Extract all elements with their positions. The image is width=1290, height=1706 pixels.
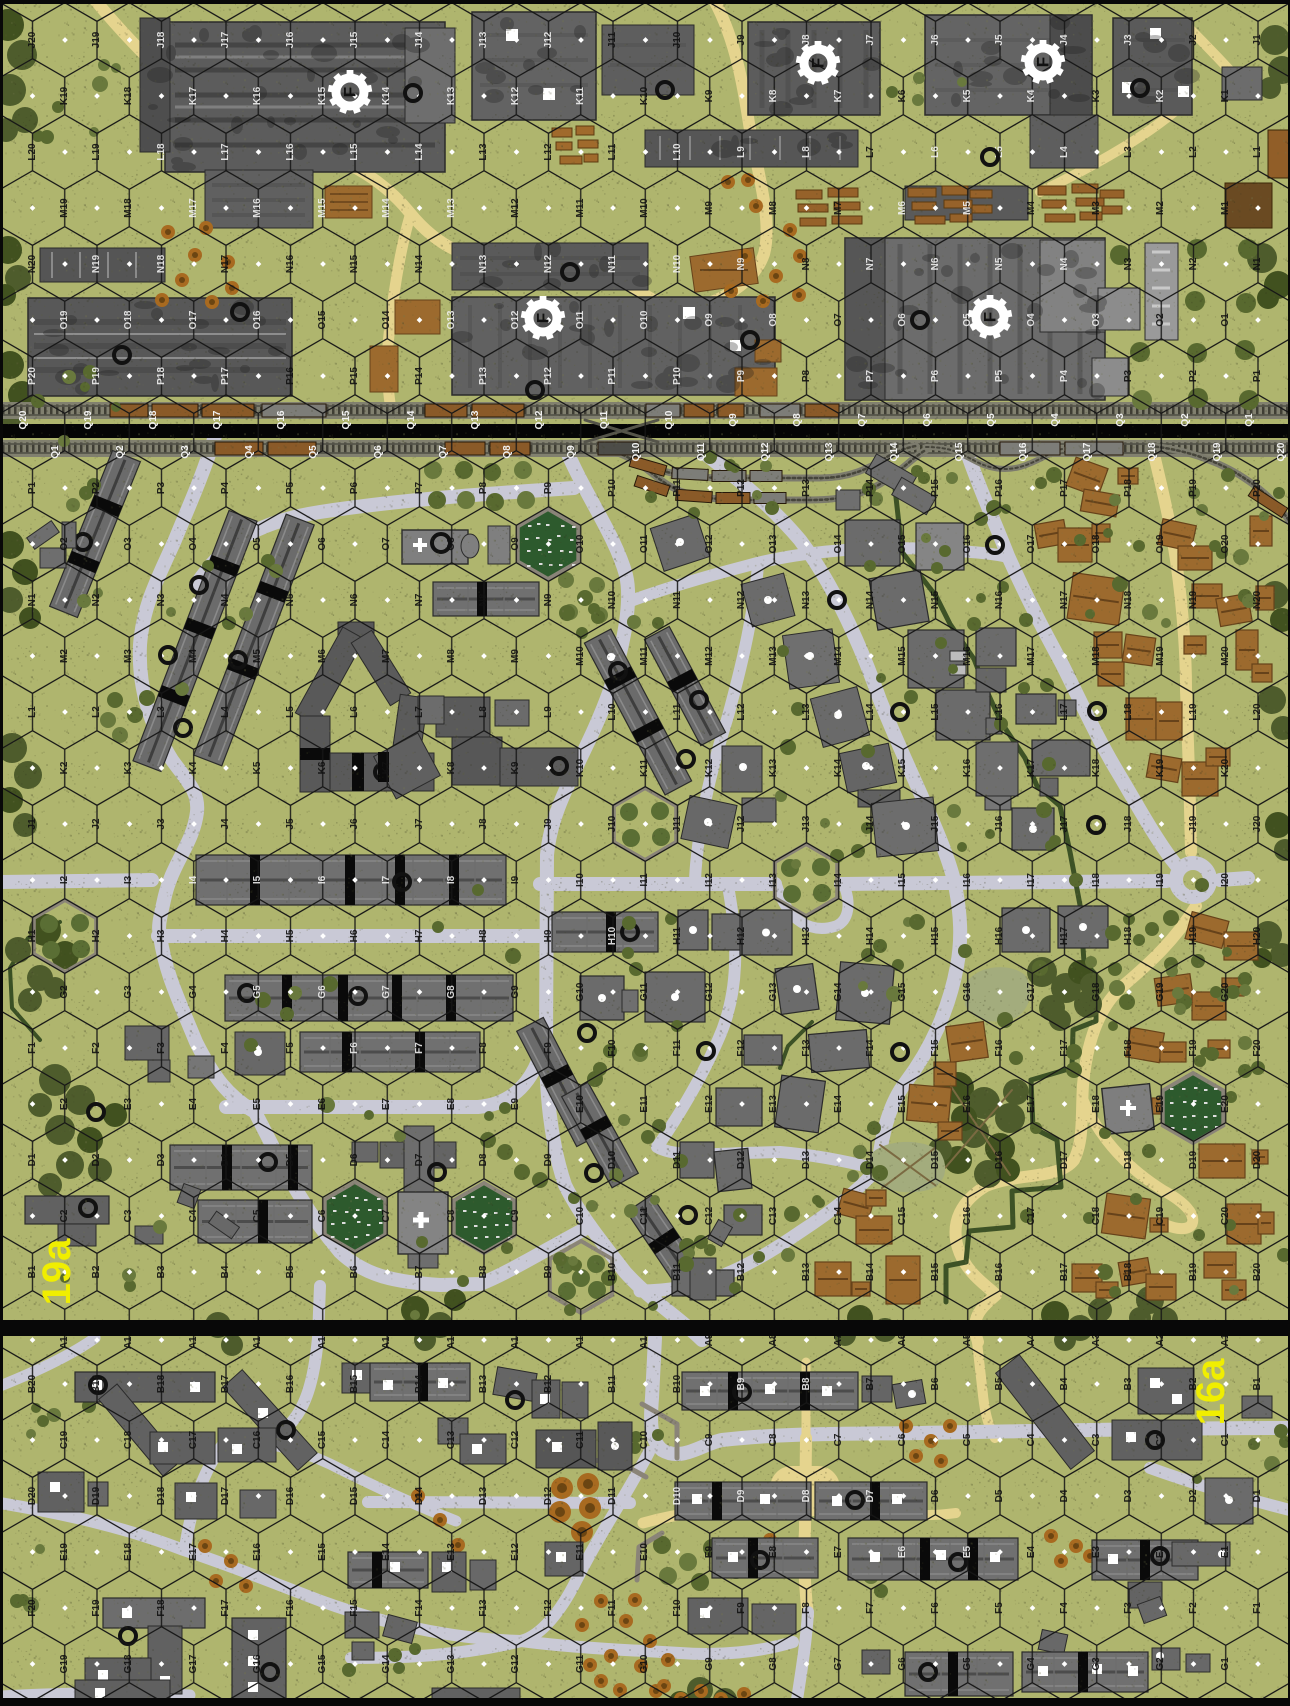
svg-text:D1: D1 xyxy=(27,1153,38,1166)
svg-text:O5: O5 xyxy=(252,537,263,551)
svg-text:I12: I12 xyxy=(704,873,715,887)
svg-text:D14: D14 xyxy=(414,1486,425,1505)
svg-text:J9: J9 xyxy=(543,818,554,830)
svg-text:O11: O11 xyxy=(575,310,586,329)
svg-text:N11: N11 xyxy=(607,255,618,273)
svg-text:J17: J17 xyxy=(1059,815,1070,832)
svg-text:Q3: Q3 xyxy=(1115,413,1126,427)
svg-text:P16: P16 xyxy=(994,479,1005,497)
svg-text:E13: E13 xyxy=(446,1543,457,1561)
svg-text:K18: K18 xyxy=(1091,758,1102,777)
svg-text:O3: O3 xyxy=(123,537,134,551)
svg-text:O20: O20 xyxy=(1220,534,1231,553)
svg-text:K4: K4 xyxy=(188,761,199,774)
svg-text:O10: O10 xyxy=(575,534,586,553)
svg-text:C12: C12 xyxy=(704,1206,715,1225)
svg-text:D2: D2 xyxy=(1188,1489,1199,1502)
svg-text:F6: F6 xyxy=(930,1602,941,1614)
svg-text:B8: B8 xyxy=(478,1265,489,1278)
svg-text:M3: M3 xyxy=(123,649,134,663)
svg-text:F16: F16 xyxy=(994,1039,1005,1057)
svg-text:F11: F11 xyxy=(607,1599,618,1616)
svg-text:N4: N4 xyxy=(220,593,231,606)
svg-text:B3: B3 xyxy=(1123,1377,1134,1390)
svg-text:E20: E20 xyxy=(1220,1095,1231,1113)
svg-text:B10: B10 xyxy=(607,1262,618,1281)
svg-text:Q18: Q18 xyxy=(148,410,159,429)
svg-text:D3: D3 xyxy=(156,1153,167,1166)
svg-text:E10: E10 xyxy=(575,1095,586,1113)
svg-text:E3: E3 xyxy=(123,1097,134,1110)
svg-text:J18: J18 xyxy=(156,31,167,48)
svg-text:F8: F8 xyxy=(478,1042,489,1054)
svg-text:P1: P1 xyxy=(1252,369,1263,382)
svg-text:G18: G18 xyxy=(123,1654,134,1673)
svg-text:L11: L11 xyxy=(672,703,683,720)
svg-text:I13: I13 xyxy=(768,873,779,887)
svg-text:O3: O3 xyxy=(1091,313,1102,327)
svg-text:M1: M1 xyxy=(1220,201,1231,215)
svg-text:L17: L17 xyxy=(1059,703,1070,721)
svg-text:D20: D20 xyxy=(27,1486,38,1505)
svg-text:Q19: Q19 xyxy=(1212,442,1223,461)
svg-text:Q18: Q18 xyxy=(1147,442,1158,461)
svg-text:C19: C19 xyxy=(1155,1206,1166,1225)
svg-text:L2: L2 xyxy=(91,706,102,718)
svg-text:P13: P13 xyxy=(478,367,489,385)
svg-text:B7: B7 xyxy=(865,1377,876,1390)
svg-text:E8: E8 xyxy=(446,1097,457,1110)
svg-text:B9: B9 xyxy=(736,1377,747,1390)
svg-text:O15: O15 xyxy=(897,534,908,553)
svg-text:J2: J2 xyxy=(1188,34,1199,46)
svg-text:B16: B16 xyxy=(285,1374,296,1393)
svg-text:F4: F4 xyxy=(220,1042,231,1054)
svg-text:J20: J20 xyxy=(27,31,38,48)
svg-text:G13: G13 xyxy=(768,982,779,1001)
svg-text:B15: B15 xyxy=(349,1374,360,1393)
svg-text:P4: P4 xyxy=(1059,369,1070,382)
svg-text:P14: P14 xyxy=(414,367,425,385)
svg-text:J5: J5 xyxy=(994,34,1005,46)
svg-text:D8: D8 xyxy=(478,1153,489,1166)
svg-text:D15: D15 xyxy=(930,1150,941,1169)
svg-text:P7: P7 xyxy=(865,369,876,382)
svg-text:C5: C5 xyxy=(962,1433,973,1446)
svg-text:L20: L20 xyxy=(1252,703,1263,721)
svg-text:J16: J16 xyxy=(285,31,296,48)
svg-text:P6: P6 xyxy=(930,369,941,382)
svg-text:G12: G12 xyxy=(510,1654,521,1673)
svg-text:E5: E5 xyxy=(252,1097,263,1110)
svg-text:E9: E9 xyxy=(704,1545,715,1558)
svg-text:D11: D11 xyxy=(607,1487,618,1505)
svg-text:G7: G7 xyxy=(381,985,392,999)
svg-text:G14: G14 xyxy=(833,982,844,1001)
svg-text:N20: N20 xyxy=(1252,590,1263,609)
svg-text:K6: K6 xyxy=(317,761,328,774)
svg-text:E16: E16 xyxy=(252,1543,263,1561)
svg-text:F10: F10 xyxy=(607,1039,618,1057)
svg-text:D11: D11 xyxy=(672,1151,683,1169)
svg-text:C11: C11 xyxy=(575,1431,586,1449)
svg-text:J10: J10 xyxy=(672,31,683,48)
svg-text:I18: I18 xyxy=(1091,873,1102,887)
svg-text:L13: L13 xyxy=(478,143,489,161)
svg-text:F2: F2 xyxy=(1188,1602,1199,1614)
svg-text:C14: C14 xyxy=(833,1206,844,1225)
svg-text:E13: E13 xyxy=(768,1095,779,1113)
svg-text:G3: G3 xyxy=(123,985,134,999)
svg-text:C4: C4 xyxy=(1026,1433,1037,1446)
svg-text:Q2: Q2 xyxy=(115,445,126,459)
svg-text:B13: B13 xyxy=(801,1262,812,1281)
svg-text:Q16: Q16 xyxy=(276,410,287,429)
svg-text:G14: G14 xyxy=(381,1654,392,1673)
svg-text:D4: D4 xyxy=(1059,1489,1070,1502)
svg-text:Q8: Q8 xyxy=(792,413,803,427)
svg-text:L10: L10 xyxy=(607,703,618,721)
svg-text:L6: L6 xyxy=(349,706,360,718)
svg-text:P11: P11 xyxy=(672,479,683,497)
svg-text:H11: H11 xyxy=(672,927,683,945)
svg-text:J15: J15 xyxy=(930,815,941,832)
svg-text:M16: M16 xyxy=(252,198,263,218)
svg-text:Q12: Q12 xyxy=(534,410,545,429)
svg-text:Q16: Q16 xyxy=(1018,442,1029,461)
svg-text:M15: M15 xyxy=(897,646,908,666)
svg-text:O17: O17 xyxy=(188,310,199,329)
svg-text:N18: N18 xyxy=(1123,590,1134,609)
svg-text:N3: N3 xyxy=(156,593,167,606)
svg-text:K19: K19 xyxy=(59,86,70,105)
svg-text:L3: L3 xyxy=(156,706,167,718)
svg-text:Q3: Q3 xyxy=(180,445,191,459)
svg-text:C20: C20 xyxy=(1220,1206,1231,1225)
svg-text:I3: I3 xyxy=(123,875,134,884)
svg-text:D16: D16 xyxy=(994,1150,1005,1169)
svg-text:F14: F14 xyxy=(414,1599,425,1617)
svg-text:O8: O8 xyxy=(446,537,457,551)
svg-text:K14: K14 xyxy=(381,86,392,105)
svg-text:M6: M6 xyxy=(897,201,908,215)
svg-text:J3: J3 xyxy=(156,818,167,830)
svg-text:O17: O17 xyxy=(1026,534,1037,553)
svg-text:L8: L8 xyxy=(478,706,489,718)
svg-text:F9: F9 xyxy=(543,1042,554,1054)
svg-text:F8: F8 xyxy=(801,1602,812,1614)
svg-text:Q13: Q13 xyxy=(824,442,835,461)
svg-text:L11: L11 xyxy=(607,143,618,160)
svg-text:Q12: Q12 xyxy=(760,442,771,461)
svg-text:J6: J6 xyxy=(930,34,941,46)
svg-text:E4: E4 xyxy=(188,1097,199,1110)
svg-text:M11: M11 xyxy=(575,198,586,217)
svg-text:N14: N14 xyxy=(414,254,425,273)
svg-text:Q14: Q14 xyxy=(889,442,900,461)
svg-text:B8: B8 xyxy=(801,1377,812,1390)
svg-text:Q7: Q7 xyxy=(438,445,449,459)
svg-text:D17: D17 xyxy=(220,1486,231,1505)
svg-text:Q17: Q17 xyxy=(212,410,223,429)
svg-text:N12: N12 xyxy=(543,254,554,273)
svg-text:O19: O19 xyxy=(1155,534,1166,553)
svg-text:Q19: Q19 xyxy=(83,410,94,429)
svg-text:N19: N19 xyxy=(1188,590,1199,609)
svg-text:O12: O12 xyxy=(704,534,715,553)
svg-text:M7: M7 xyxy=(833,201,844,215)
svg-text:O12: O12 xyxy=(510,310,521,329)
svg-text:F11: F11 xyxy=(672,1039,683,1056)
svg-text:J9: J9 xyxy=(736,34,747,46)
svg-text:Q11: Q11 xyxy=(696,442,707,461)
svg-text:K10: K10 xyxy=(575,758,586,777)
svg-text:16a: 16a xyxy=(1189,1358,1233,1425)
svg-text:K9: K9 xyxy=(704,89,715,102)
svg-text:P15: P15 xyxy=(930,479,941,497)
svg-text:M4: M4 xyxy=(1026,201,1037,215)
svg-text:M17: M17 xyxy=(1026,646,1037,666)
svg-text:Q5: Q5 xyxy=(308,445,319,459)
svg-text:N4: N4 xyxy=(1059,257,1070,270)
svg-text:F4: F4 xyxy=(1059,1602,1070,1614)
svg-text:M7: M7 xyxy=(381,649,392,663)
svg-text:D2: D2 xyxy=(91,1153,102,1166)
svg-text:P14: P14 xyxy=(865,479,876,497)
svg-text:N5: N5 xyxy=(994,257,1005,270)
svg-text:F3: F3 xyxy=(1123,1602,1134,1614)
svg-text:F20: F20 xyxy=(27,1599,38,1617)
svg-text:B19: B19 xyxy=(91,1374,102,1393)
svg-text:M20: M20 xyxy=(1220,646,1231,666)
svg-text:K20: K20 xyxy=(1220,758,1231,777)
svg-text:G1: G1 xyxy=(1220,1657,1231,1671)
svg-text:K14: K14 xyxy=(833,758,844,777)
svg-text:Q5: Q5 xyxy=(986,413,997,427)
svg-text:B14: B14 xyxy=(414,1374,425,1393)
svg-text:K19: K19 xyxy=(1155,758,1166,777)
svg-text:P5: P5 xyxy=(994,369,1005,382)
svg-text:C12: C12 xyxy=(510,1430,521,1449)
svg-text:P18: P18 xyxy=(156,367,167,385)
svg-text:B19: B19 xyxy=(1188,1262,1199,1281)
svg-text:G2: G2 xyxy=(59,985,70,999)
svg-text:K5: K5 xyxy=(252,761,263,774)
svg-text:D5: D5 xyxy=(285,1153,296,1166)
svg-text:N12: N12 xyxy=(736,590,747,609)
svg-text:M2: M2 xyxy=(59,649,70,663)
svg-text:B20: B20 xyxy=(1252,1262,1263,1281)
svg-text:P9: P9 xyxy=(543,481,554,494)
svg-text:K12: K12 xyxy=(510,86,521,105)
svg-text:E6: E6 xyxy=(317,1097,328,1110)
svg-text:N10: N10 xyxy=(672,254,683,273)
svg-text:B11: B11 xyxy=(607,1375,618,1393)
svg-text:E4: E4 xyxy=(1026,1545,1037,1558)
svg-text:J8: J8 xyxy=(801,34,812,46)
svg-text:O19: O19 xyxy=(59,310,70,329)
svg-text:I7: I7 xyxy=(381,875,392,884)
svg-text:J12: J12 xyxy=(543,31,554,48)
svg-text:Q20: Q20 xyxy=(18,410,29,429)
svg-text:D19: D19 xyxy=(1188,1150,1199,1169)
svg-text:O6: O6 xyxy=(897,313,908,327)
svg-text:B17: B17 xyxy=(1059,1262,1070,1281)
svg-text:H14: H14 xyxy=(865,926,876,945)
svg-text:L4: L4 xyxy=(220,706,231,718)
svg-text:B7: B7 xyxy=(414,1265,425,1278)
svg-text:L20: L20 xyxy=(27,143,38,161)
svg-text:Q13: Q13 xyxy=(470,410,481,429)
svg-text:K17: K17 xyxy=(1026,758,1037,777)
svg-text:G10: G10 xyxy=(575,982,586,1001)
svg-text:N1: N1 xyxy=(27,593,38,606)
svg-text:E12: E12 xyxy=(510,1543,521,1561)
svg-text:M6: M6 xyxy=(317,649,328,663)
svg-text:C16: C16 xyxy=(252,1430,263,1449)
svg-text:L9: L9 xyxy=(736,146,747,158)
svg-text:D18: D18 xyxy=(1123,1150,1134,1169)
svg-text:N2: N2 xyxy=(91,593,102,606)
svg-text:M10: M10 xyxy=(575,646,586,666)
svg-text:E3: E3 xyxy=(1091,1545,1102,1558)
svg-text:L6: L6 xyxy=(930,146,941,158)
svg-text:Q4: Q4 xyxy=(244,445,255,459)
svg-text:H9: H9 xyxy=(543,929,554,942)
svg-text:Q9: Q9 xyxy=(566,445,577,459)
svg-text:N17: N17 xyxy=(1059,590,1070,609)
svg-text:N14: N14 xyxy=(865,590,876,609)
svg-text:D7: D7 xyxy=(414,1153,425,1166)
svg-text:M10: M10 xyxy=(639,198,650,218)
svg-text:G15: G15 xyxy=(897,982,908,1001)
svg-text:O16: O16 xyxy=(252,310,263,329)
svg-text:C6: C6 xyxy=(897,1433,908,1446)
svg-text:E17: E17 xyxy=(1026,1095,1037,1113)
svg-text:P2: P2 xyxy=(1188,369,1199,382)
svg-text:P19: P19 xyxy=(1188,479,1199,497)
svg-text:L2: L2 xyxy=(1188,146,1199,158)
svg-text:I5: I5 xyxy=(252,875,263,884)
svg-text:C9: C9 xyxy=(510,1209,521,1222)
svg-text:E19: E19 xyxy=(1155,1095,1166,1113)
svg-text:B2: B2 xyxy=(91,1265,102,1278)
svg-text:D17: D17 xyxy=(1059,1150,1070,1169)
svg-text:N10: N10 xyxy=(607,590,618,609)
svg-text:L15: L15 xyxy=(930,703,941,721)
svg-text:B17: B17 xyxy=(220,1374,231,1393)
svg-text:G2: G2 xyxy=(1155,1657,1166,1671)
svg-text:K7: K7 xyxy=(833,89,844,102)
svg-text:I9: I9 xyxy=(510,875,521,884)
svg-text:K4: K4 xyxy=(1026,89,1037,102)
svg-text:N9: N9 xyxy=(543,593,554,606)
svg-text:P15: P15 xyxy=(349,367,360,385)
svg-text:P20: P20 xyxy=(1252,479,1263,497)
svg-text:N2: N2 xyxy=(1188,257,1199,270)
svg-text:O14: O14 xyxy=(381,310,392,329)
svg-text:D20: D20 xyxy=(1252,1150,1263,1169)
svg-text:G4: G4 xyxy=(188,985,199,999)
svg-text:M14: M14 xyxy=(833,646,844,666)
svg-text:E15: E15 xyxy=(317,1543,328,1561)
svg-text:C13: C13 xyxy=(768,1206,779,1225)
svg-text:I15: I15 xyxy=(897,873,908,887)
svg-text:G8: G8 xyxy=(768,1657,779,1671)
svg-text:Q9: Q9 xyxy=(728,413,739,427)
svg-text:L5: L5 xyxy=(285,706,296,718)
svg-text:H1: H1 xyxy=(27,929,38,942)
svg-text:J18: J18 xyxy=(1123,815,1134,832)
svg-text:F13: F13 xyxy=(478,1599,489,1617)
svg-text:E9: E9 xyxy=(510,1097,521,1110)
svg-text:E1: E1 xyxy=(1220,1545,1231,1558)
svg-text:Q4: Q4 xyxy=(1050,413,1061,427)
svg-text:E18: E18 xyxy=(123,1543,134,1561)
svg-text:N6: N6 xyxy=(930,257,941,270)
svg-text:J11: J11 xyxy=(607,31,618,48)
svg-text:G5: G5 xyxy=(962,1657,973,1671)
svg-text:L12: L12 xyxy=(736,703,747,721)
svg-text:C17: C17 xyxy=(1026,1206,1037,1225)
svg-text:I14: I14 xyxy=(833,873,844,887)
svg-text:K16: K16 xyxy=(252,86,263,105)
svg-text:B14: B14 xyxy=(865,1262,876,1281)
svg-text:M19: M19 xyxy=(1155,646,1166,666)
svg-text:O10: O10 xyxy=(639,310,650,329)
svg-text:L1: L1 xyxy=(27,706,38,718)
svg-text:B9: B9 xyxy=(543,1265,554,1278)
svg-text:I11: I11 xyxy=(639,873,650,887)
svg-text:J14: J14 xyxy=(414,31,425,48)
svg-text:L3: L3 xyxy=(1123,146,1134,158)
svg-text:P12: P12 xyxy=(736,479,747,497)
svg-text:N7: N7 xyxy=(414,593,425,606)
svg-text:K8: K8 xyxy=(768,89,779,102)
svg-text:B12: B12 xyxy=(543,1374,554,1393)
svg-text:B5: B5 xyxy=(285,1265,296,1278)
svg-text:G13: G13 xyxy=(446,1654,457,1673)
svg-text:P20: P20 xyxy=(27,367,38,385)
svg-text:J8: J8 xyxy=(478,818,489,830)
svg-text:H17: H17 xyxy=(1059,926,1070,945)
svg-text:E14: E14 xyxy=(833,1095,844,1113)
svg-text:J6: J6 xyxy=(349,818,360,830)
svg-text:H18: H18 xyxy=(1123,926,1134,945)
svg-text:F18: F18 xyxy=(1123,1039,1134,1057)
svg-text:O18: O18 xyxy=(123,310,134,329)
svg-text:K15: K15 xyxy=(317,86,328,105)
svg-text:M8: M8 xyxy=(446,649,457,663)
svg-text:B6: B6 xyxy=(930,1377,941,1390)
svg-text:F7: F7 xyxy=(865,1602,876,1614)
svg-text:D14: D14 xyxy=(865,1150,876,1169)
svg-text:N19: N19 xyxy=(91,254,102,273)
svg-text:G8: G8 xyxy=(446,985,457,999)
svg-text:F7: F7 xyxy=(414,1042,425,1054)
svg-text:K7: K7 xyxy=(381,761,392,774)
svg-text:P3: P3 xyxy=(156,481,167,494)
svg-text:H4: H4 xyxy=(220,929,231,942)
svg-text:O9: O9 xyxy=(704,313,715,327)
svg-text:L7: L7 xyxy=(865,146,876,158)
svg-text:C3: C3 xyxy=(1091,1433,1102,1446)
svg-text:M2: M2 xyxy=(1155,201,1166,215)
svg-text:F14: F14 xyxy=(865,1039,876,1057)
svg-text:B15: B15 xyxy=(930,1262,941,1281)
svg-text:G18: G18 xyxy=(1091,982,1102,1001)
svg-text:D10: D10 xyxy=(672,1486,683,1505)
